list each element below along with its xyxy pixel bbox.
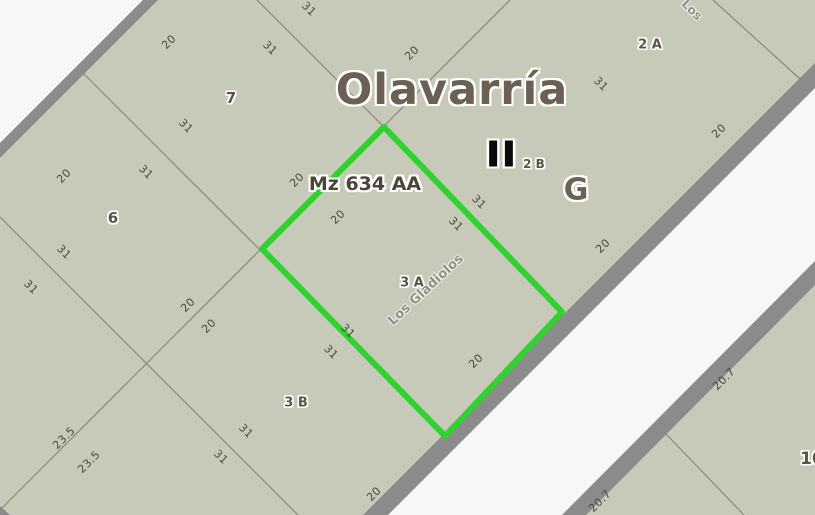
manzana-label: Mz 634 AA — [309, 173, 421, 195]
parcel-id-label: 3 B — [284, 396, 307, 411]
parcel-id-label: 7 — [226, 89, 236, 107]
zone-letter-label: G — [564, 173, 589, 208]
city-title: Olavarría — [336, 65, 569, 115]
cadastral-map-canvas[interactable]: 2031312031202031203131312020202031313131… — [0, 0, 815, 515]
section-numeral-label: II — [485, 135, 517, 176]
parcel-id-label: 6 — [108, 209, 118, 227]
parcel-id-label: 10 — [800, 449, 815, 469]
parcel-id-label: 2 B — [523, 157, 545, 171]
parcel-id-label: 2 A — [638, 38, 662, 53]
